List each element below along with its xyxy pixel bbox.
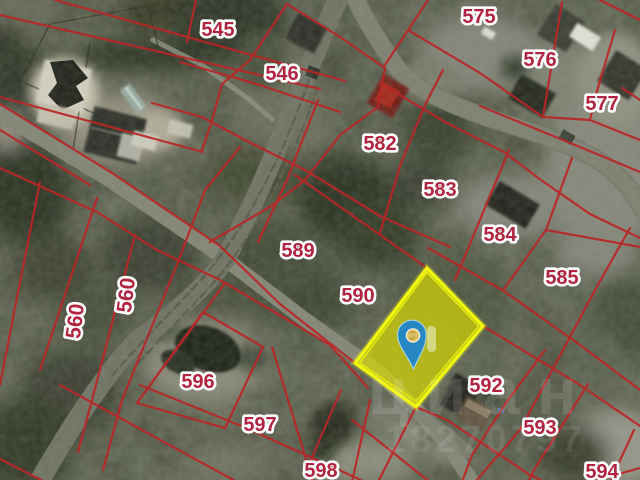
svg-text:545: 545 <box>201 19 234 41</box>
svg-text:589: 589 <box>281 240 314 262</box>
svg-text:592: 592 <box>469 375 502 397</box>
svg-text:597: 597 <box>243 414 276 436</box>
svg-text:593: 593 <box>523 417 556 439</box>
svg-text:575: 575 <box>462 6 495 28</box>
svg-text:594: 594 <box>585 461 619 480</box>
svg-text:546: 546 <box>265 63 298 85</box>
svg-text:560: 560 <box>113 276 140 314</box>
svg-text:583: 583 <box>423 179 456 201</box>
svg-text:598: 598 <box>304 460 337 480</box>
svg-text:584: 584 <box>483 224 517 246</box>
svg-text:560: 560 <box>62 302 89 340</box>
svg-text:577: 577 <box>585 93 618 115</box>
svg-text:585: 585 <box>545 267 578 289</box>
svg-text:596: 596 <box>181 371 214 393</box>
svg-text:582: 582 <box>363 133 396 155</box>
svg-text:576: 576 <box>523 49 556 71</box>
svg-text:590: 590 <box>341 285 374 307</box>
